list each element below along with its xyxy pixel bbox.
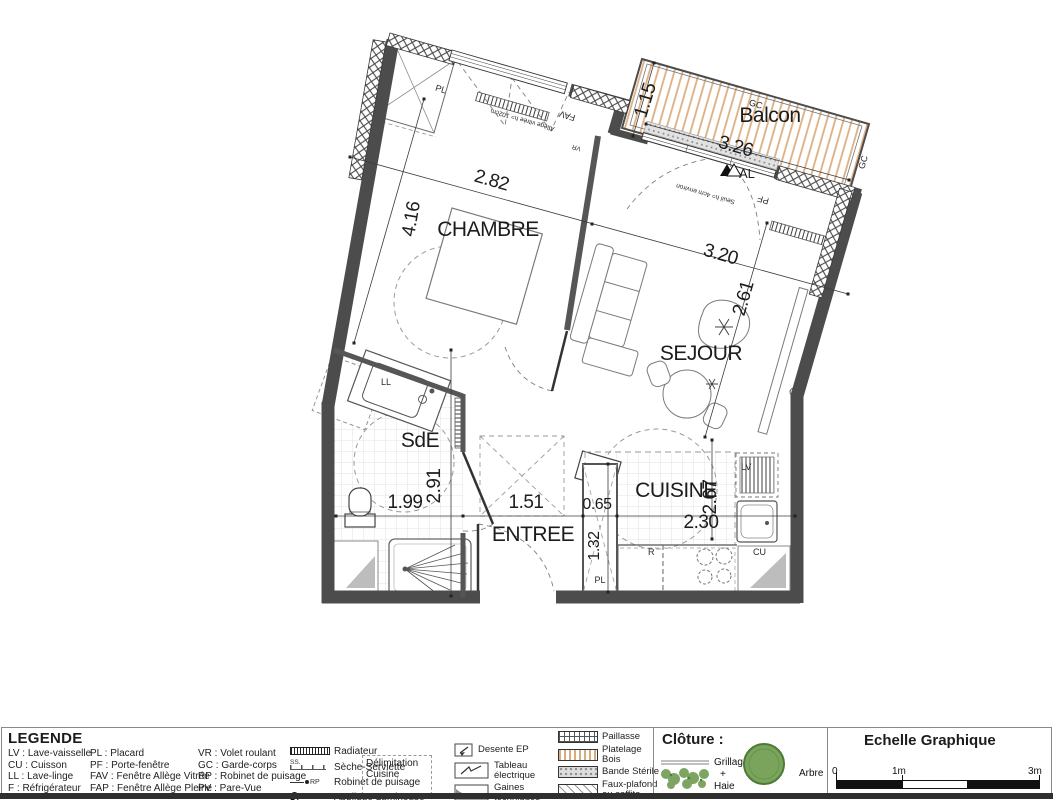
legend-abbreviations-col1: LV : Lave-vaisselle CU : Cuisson LL : La… [8, 748, 91, 794]
rp-tag: RP [310, 779, 320, 786]
dim-closet-width: 0.65 [582, 496, 612, 513]
note-seuil: Seuil h= 4cm environ [675, 182, 736, 206]
dim-cuisine-height: 2.67 [700, 480, 721, 515]
dim-sde-height: 2.91 [424, 469, 445, 504]
legend-delimitation-cuisine: Délimitation Cuisine [362, 755, 432, 795]
plus-label: + [720, 769, 726, 780]
tag-al: AL [739, 166, 755, 181]
cloture-title: Clôture : [662, 731, 724, 748]
toilet [345, 488, 375, 527]
tag-vr: VR [571, 143, 582, 152]
cooktop [697, 548, 732, 584]
legend-panel: LEGENDE LV : Lave-vaisselle CU : Cuisson… [1, 727, 1052, 794]
fence-hedge-icon [659, 756, 711, 792]
legend-label: Desente EP [478, 745, 529, 755]
ss-tag: SS. [290, 759, 300, 766]
legend-desente-row: Desente EP [454, 743, 546, 757]
haie-label: Haie [714, 781, 735, 792]
dim-sejour-width: 3.20 [701, 240, 740, 270]
legend-tableau-row: Tableau électrique [454, 761, 546, 780]
legend-paillasse-row: Paillasse [558, 731, 660, 743]
tag-r: R [648, 547, 655, 557]
radiator-icon [290, 747, 330, 755]
tag-fav: FAV [558, 109, 576, 123]
legend-abbr: PF : Porte-fenêtre [90, 760, 212, 772]
dishwasher [736, 453, 778, 497]
door-leaves [463, 331, 567, 591]
legend-abbreviations-col2: PL : Placard PF : Porte-fenêtre FAV : Fe… [90, 748, 212, 794]
dim-closet-height: 1.32 [586, 531, 603, 561]
legend-abbr: LV : Lave-vaisselle [8, 748, 91, 760]
legend-abbr: PL : Placard [90, 748, 212, 760]
legend-bande-row: Bande Stérile [558, 766, 660, 778]
room-label-sejour: SEJOUR [660, 342, 743, 365]
legend-abbr: LL : Lave-linge [8, 771, 91, 783]
downpipe-icon [454, 743, 474, 757]
legend-divider [827, 728, 828, 794]
room-label-sde: SdE [401, 429, 440, 452]
electrical-panel-icon [454, 762, 490, 779]
room-label-balcon: Balcon [739, 104, 800, 127]
wood-decking-pattern-icon [558, 749, 598, 761]
legend-abbr: FAV : Fenêtre Allège Vitrée [90, 771, 212, 783]
legend-patterns: Paillasse Platelage Bois Bande Stérile F… [558, 731, 660, 800]
tree-icon [741, 741, 787, 787]
scale-1m: 1m [892, 766, 906, 777]
dining-table [645, 359, 729, 431]
shower [389, 539, 471, 596]
floor-plan-sheet: CHAMBRE SEJOUR CUISINE ENTREE SdE Balcon… [0, 0, 1053, 800]
legend-divider [653, 728, 654, 794]
room-label-entree: ENTREE [492, 523, 575, 546]
scale-bar [836, 780, 1040, 789]
window-fav [449, 50, 567, 94]
dim-chambre-width: 2.82 [472, 166, 511, 196]
scale-title: Echelle Graphique [864, 732, 996, 749]
dim-chambre-height: 4.16 [398, 200, 425, 238]
sheet-bottom-rule [0, 793, 1053, 799]
tag-pf: PF [756, 193, 770, 206]
tag-ll: LL [381, 377, 391, 387]
legend-label: Tableau électrique [494, 761, 546, 780]
legend-platelage-row: Platelage Bois [558, 745, 660, 764]
closet [583, 464, 617, 593]
kitchen-sink [737, 501, 777, 542]
legend-label: Bande Stérile [602, 767, 659, 777]
legend-icons: Desente EP Tableau électrique Gaines tec… [454, 743, 546, 800]
legend-abbr: CU : Cuisson [8, 760, 91, 772]
tap-icon [290, 782, 304, 783]
dim-entree-width: 1.51 [509, 492, 544, 513]
room-label-chambre: CHAMBRE [437, 218, 539, 241]
legend-label: Platelage Bois [602, 745, 648, 764]
bathroom-cabinet [334, 541, 378, 591]
legend-label: Paillasse [602, 732, 640, 742]
legend-title: LEGENDE [8, 730, 83, 747]
tag-cu: CU [753, 547, 766, 557]
dim-sejour-height: 2.61 [729, 279, 759, 318]
tag-lv: LV [741, 462, 751, 472]
worktop-pattern-icon [558, 731, 598, 743]
arbre-label: Arbre [799, 768, 823, 779]
sterile-band-pattern-icon [558, 766, 598, 778]
floor-plan: CHAMBRE SEJOUR CUISINE ENTREE SdE Balcon… [0, 0, 1053, 727]
dim-sde-width: 1.99 [388, 492, 423, 513]
tag-placard-entree: PL [594, 575, 605, 585]
